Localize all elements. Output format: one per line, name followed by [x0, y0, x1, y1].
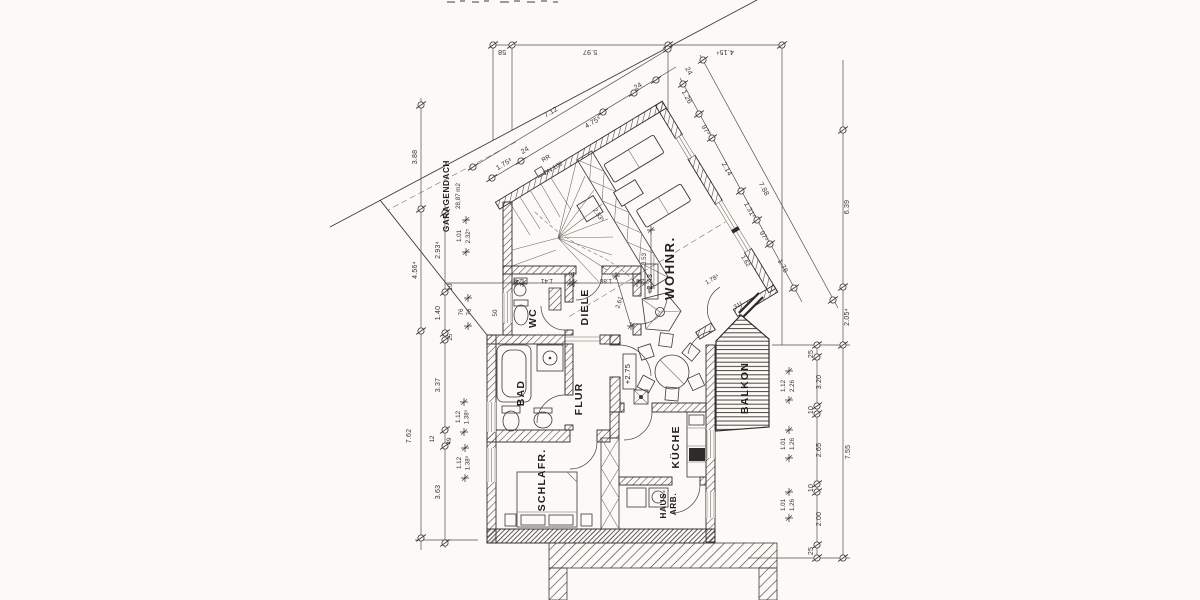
- dim-label: 10: [568, 270, 575, 277]
- room-label-garagendach-2: 28,87 m2: [455, 183, 462, 209]
- chimney-shaft: [601, 438, 619, 529]
- dim-label: 4.56⁴: [412, 261, 419, 279]
- dim-label: 2.26: [789, 379, 796, 392]
- roof-slope-line: [569, 222, 726, 317]
- room-label-kueche: KÜCHE: [669, 425, 682, 468]
- nightstand-left: [505, 514, 516, 526]
- toilet-wc: [514, 300, 528, 325]
- dim-label: 1.12: [455, 410, 462, 423]
- room-label-wohnraum: WOHNR.: [662, 236, 677, 300]
- room-label-flur: FLUR: [573, 383, 585, 416]
- dim-label: 97²: [758, 230, 770, 243]
- dim-label: 10: [447, 283, 454, 290]
- dim-label: 24: [683, 66, 693, 77]
- room-label-wc: WC: [527, 308, 539, 328]
- dim-label: 1.40: [435, 306, 442, 320]
- dim-label: 24: [633, 82, 644, 92]
- dim-label: 5.97: [583, 48, 597, 55]
- radiator: [549, 288, 561, 310]
- dim-label: 1.76: [776, 258, 789, 274]
- dim-label: 3.88: [412, 150, 419, 164]
- dim-label: 24: [515, 277, 522, 284]
- plant-symbol: [634, 390, 648, 404]
- dim-label: 2.65: [816, 443, 823, 457]
- dim-label: 3.37: [435, 378, 442, 392]
- stove: [689, 448, 705, 461]
- toilet-bad: [502, 406, 520, 431]
- dim-label: 1.26: [789, 437, 796, 450]
- clipped-title-marks: [447, 1, 558, 2]
- dim-label: 25: [808, 547, 815, 555]
- dim-label: 7.55: [845, 445, 852, 459]
- dim-label: 25: [447, 333, 454, 340]
- dim-label: 1.38⁵: [465, 455, 472, 470]
- room-label-garagendach-1: GARAGENDACH: [442, 160, 451, 232]
- coffee-table: [614, 180, 644, 207]
- dim-label: 1.38⁵: [464, 409, 471, 424]
- dim-label: 25: [808, 350, 815, 358]
- room-label-hausarbeit-2: ARB.: [669, 493, 678, 515]
- garage-below-outline: [549, 543, 777, 600]
- dim-label: 10: [808, 406, 815, 414]
- dim-label: 1.31²: [742, 201, 757, 220]
- bed: [505, 472, 592, 527]
- room-label-balkon: BALKON: [739, 362, 751, 414]
- room-label-schlafzimmer: SCHLAFR.: [536, 449, 548, 512]
- room-label-hausarbeit-1: HAUS-: [659, 490, 668, 519]
- dim-label: 2.32⁵: [465, 228, 472, 243]
- dim-label: 3.63: [435, 485, 442, 499]
- dim-label: 2.61: [614, 295, 624, 309]
- wall-south: [487, 529, 715, 543]
- dim-label: 24: [637, 277, 644, 284]
- dim-label: 2.00: [816, 512, 823, 526]
- dim-label: 1.01: [456, 229, 463, 242]
- dim-label: 76: [466, 308, 473, 315]
- level-essplatz: +2.75: [623, 364, 632, 384]
- threshold-diele-flur: [565, 337, 600, 341]
- dim-label: 2.14: [720, 161, 733, 177]
- dim-label: 7.62: [406, 429, 413, 443]
- dim-label: 1.78⁴: [704, 273, 720, 287]
- dim-label: 1.26: [789, 498, 796, 511]
- dim-label: 1.26: [680, 89, 693, 105]
- dim-label: 3.53: [641, 252, 648, 265]
- dim-label: 1.41: [540, 277, 553, 284]
- annotation-rr-1: RR: [541, 153, 553, 164]
- dim-label: 12: [429, 435, 436, 442]
- dim-label: 24: [520, 146, 531, 156]
- floorplan-svg: WC DIELE WOHNR. BAD FLUR KÜCHE SCHLAFR. …: [0, 0, 1200, 600]
- shower: [537, 345, 563, 371]
- room-label-bad: BAD: [515, 380, 527, 406]
- dim-label: 50: [492, 309, 499, 316]
- dim-label: 58: [498, 48, 506, 55]
- kitchen-counter: [687, 412, 706, 477]
- dim-label: 1.12: [780, 379, 787, 392]
- dim-label: 7.88: [757, 181, 770, 197]
- dim-label: 1.88: [599, 277, 612, 284]
- kitchen-sink: [689, 415, 704, 425]
- dim-label: 7.12: [543, 106, 559, 119]
- dim-label: 97²: [700, 124, 712, 137]
- dim-label: 1.75³: [495, 157, 514, 172]
- room-label-diele: DIELE: [579, 289, 591, 326]
- dim-label: 2.93⁴: [435, 241, 442, 259]
- level-wohnraum: +2.43: [645, 274, 654, 294]
- sink-bad: [534, 408, 552, 428]
- wall-west: [487, 335, 496, 543]
- dim-label: 76: [458, 308, 465, 315]
- dim-label: 2.05⁴: [844, 308, 851, 326]
- dim-label: 6.39: [844, 200, 851, 214]
- balcony-door-arc: [698, 287, 734, 323]
- dim-label: 10: [808, 484, 815, 492]
- dim-label: 1.01: [780, 437, 787, 450]
- scanned-floor-plan-page: WC DIELE WOHNR. BAD FLUR KÜCHE SCHLAFR. …: [0, 0, 1200, 600]
- nightstand-right: [581, 514, 592, 526]
- dim-label: 3.20: [816, 375, 823, 389]
- dim-label: 49: [446, 437, 453, 444]
- dim-label: 1.12: [456, 456, 463, 469]
- dim-label: 1.01: [780, 498, 787, 511]
- dim-label: 4.15⁴: [716, 48, 734, 55]
